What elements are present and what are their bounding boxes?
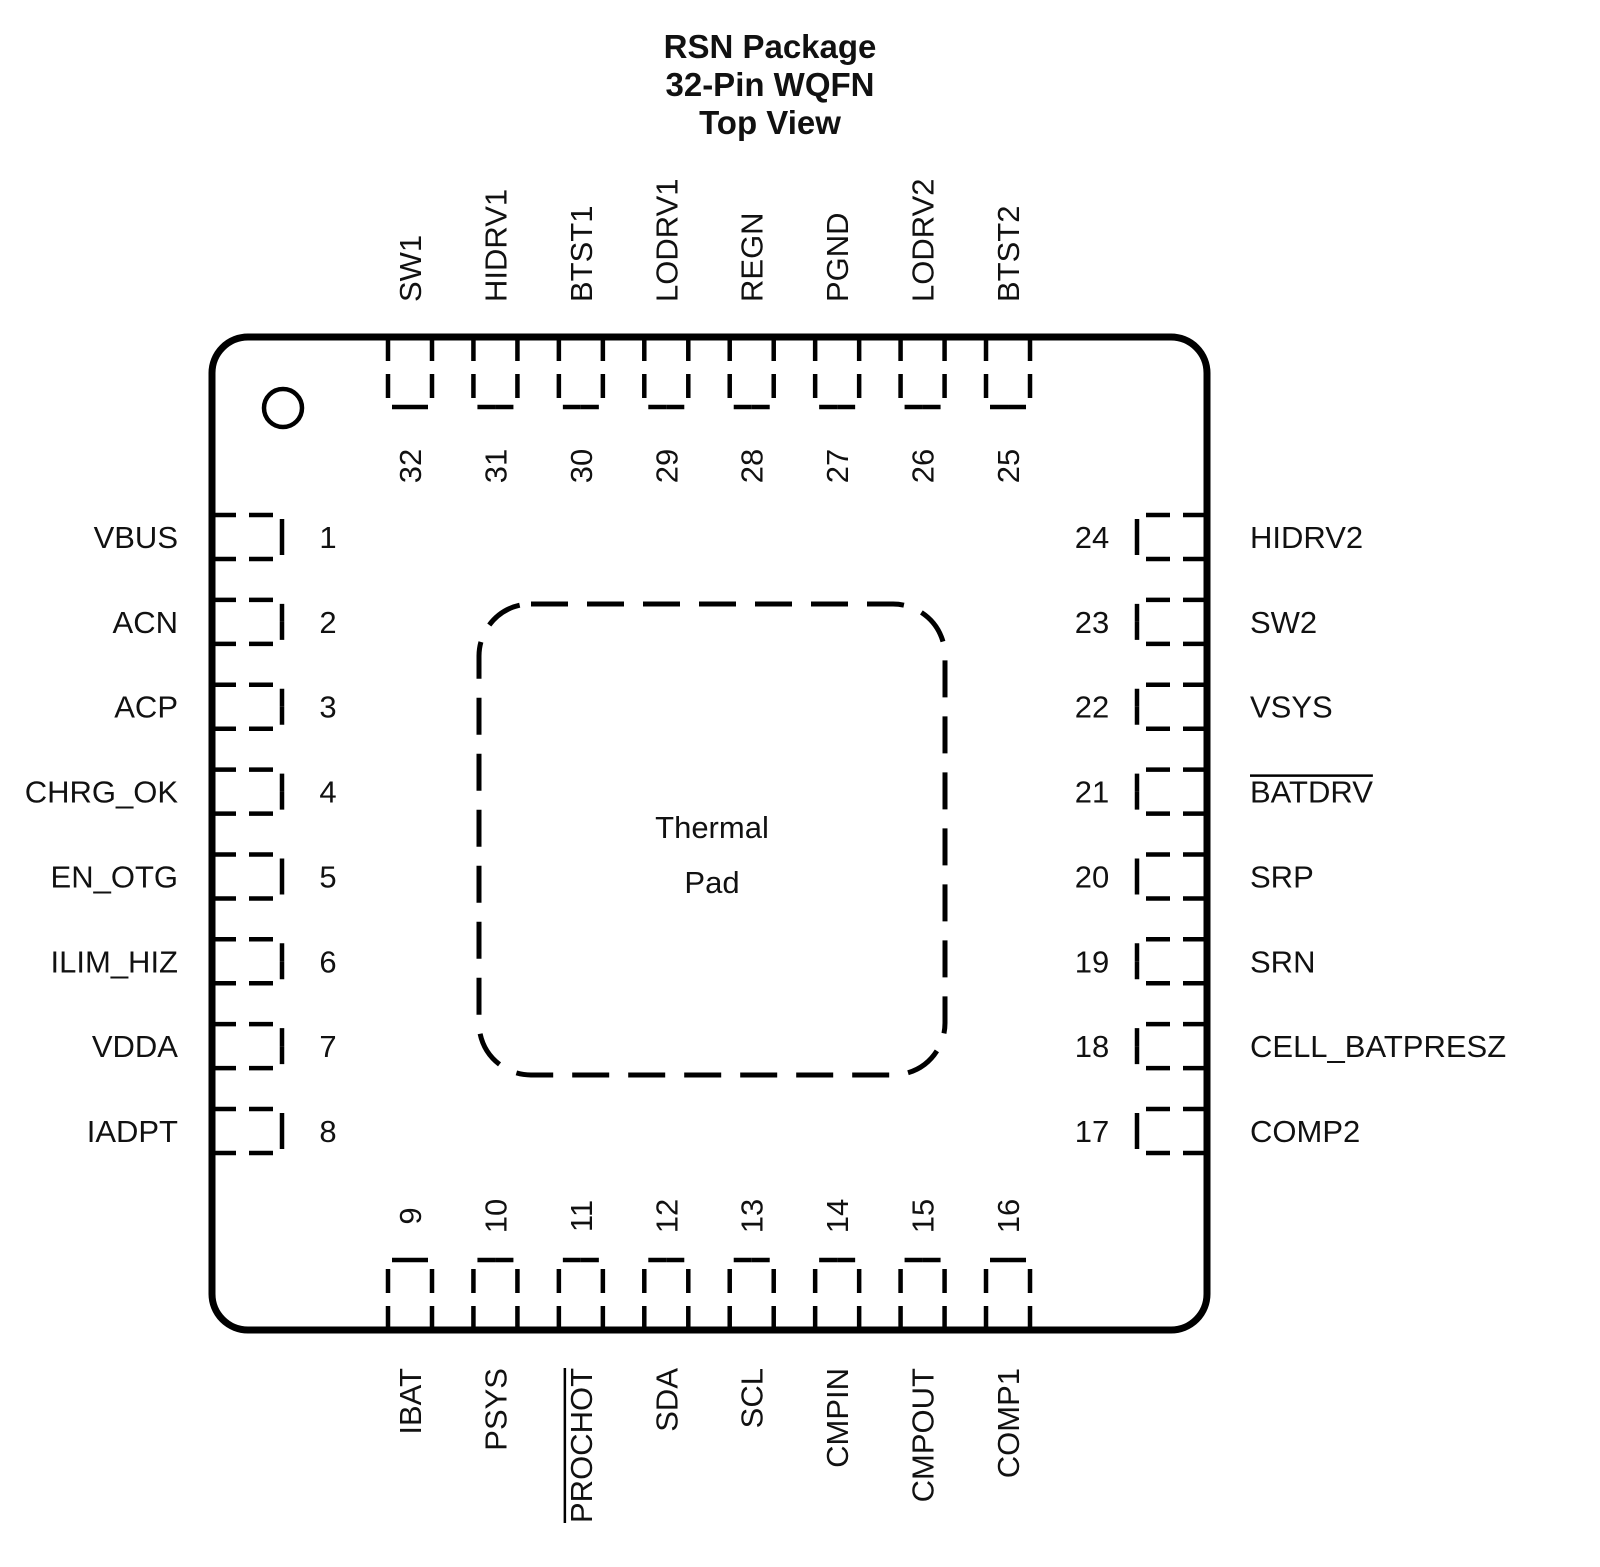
pin-2: 2ACN xyxy=(113,600,337,644)
thermal-pad-label: Pad xyxy=(684,865,739,900)
pin-label: PGND xyxy=(820,212,855,302)
pin-number: 21 xyxy=(1075,775,1109,810)
pin-label: SRP xyxy=(1250,859,1314,894)
pin-pad xyxy=(666,1260,688,1330)
pin-17: 17COMP2 xyxy=(1075,1109,1360,1153)
pin-number: 17 xyxy=(1075,1114,1109,1149)
pin-20: 20SRP xyxy=(1075,854,1314,898)
pin-pad xyxy=(212,792,282,814)
pin-label: ACN xyxy=(113,605,178,640)
pin-label: EN_OTG xyxy=(51,859,178,894)
pin-pad xyxy=(212,939,282,961)
pin-pad xyxy=(752,1260,774,1330)
pin-number: 18 xyxy=(1075,1029,1109,1064)
pin-number: 28 xyxy=(735,449,770,483)
pin-21: 21BATDRV xyxy=(1075,770,1373,814)
pin-pad xyxy=(212,622,282,644)
pin-12: 12SDA xyxy=(644,1199,688,1432)
pin-pad xyxy=(1137,1024,1207,1046)
pin-pad xyxy=(410,1260,432,1330)
pin-pad xyxy=(1137,537,1207,559)
pin-23: 23SW2 xyxy=(1075,600,1317,644)
pin-13: 13SCL xyxy=(730,1199,774,1429)
pin-label: PSYS xyxy=(478,1368,513,1451)
pinout-figure: RSN Package 32-Pin WQFN Top View Thermal… xyxy=(0,0,1600,1567)
pin-pad xyxy=(212,1024,282,1046)
pin-pad xyxy=(923,1260,945,1330)
pin-pad xyxy=(986,337,1008,407)
pin-pad xyxy=(730,1260,752,1330)
pin-10: 10PSYS xyxy=(473,1199,517,1451)
pin-label: ILIM_HIZ xyxy=(51,944,178,979)
pin-pad xyxy=(1008,337,1030,407)
pin-label: BTST1 xyxy=(564,206,599,302)
pin1-indicator-circle xyxy=(264,389,302,427)
pin-pad xyxy=(212,707,282,729)
pin-pad xyxy=(644,337,666,407)
pin-label: BATDRV xyxy=(1250,775,1373,810)
pin-pad xyxy=(388,1260,410,1330)
pin-pad xyxy=(1137,770,1207,792)
pin-number: 10 xyxy=(478,1199,513,1233)
pin-pad xyxy=(1137,876,1207,898)
pin-pad xyxy=(837,337,859,407)
pin-pad xyxy=(1137,600,1207,622)
pin-number: 4 xyxy=(319,775,336,810)
pin-label: IBAT xyxy=(393,1368,428,1435)
pin-label: LODRV2 xyxy=(906,179,941,303)
pin-pad xyxy=(212,770,282,792)
pin-label: LODRV1 xyxy=(649,179,684,303)
pin-pad xyxy=(212,600,282,622)
pin-pad xyxy=(730,337,752,407)
pin-pad xyxy=(1137,515,1207,537)
pin-pad xyxy=(473,1260,495,1330)
pin-number: 5 xyxy=(319,859,336,894)
pin-number: 20 xyxy=(1075,859,1109,894)
pin-pad xyxy=(581,337,603,407)
pin-pad xyxy=(495,337,517,407)
pin-number: 7 xyxy=(319,1029,336,1064)
pin-number: 31 xyxy=(478,449,513,483)
pin-9: 9IBAT xyxy=(388,1207,432,1434)
pin-number: 19 xyxy=(1075,944,1109,979)
pin-pad xyxy=(212,537,282,559)
pin-label: VDDA xyxy=(92,1029,178,1064)
pin-number: 15 xyxy=(906,1199,941,1233)
pin-15: 15CMPOUT xyxy=(901,1199,945,1503)
pin-pad xyxy=(212,961,282,983)
pin-label: REGN xyxy=(735,212,770,302)
pin-pad xyxy=(212,876,282,898)
pin-number: 25 xyxy=(991,449,1026,483)
pin-label: SRN xyxy=(1250,944,1315,979)
pin-28: 28REGN xyxy=(730,212,774,483)
pin-pad xyxy=(815,1260,837,1330)
pin-3: 3ACP xyxy=(114,685,336,729)
pin-number: 3 xyxy=(319,690,336,725)
pin-label: VSYS xyxy=(1250,690,1333,725)
pin-number: 23 xyxy=(1075,605,1109,640)
pin-number: 22 xyxy=(1075,690,1109,725)
pin-pad xyxy=(473,337,495,407)
pin-32: 32SW1 xyxy=(388,235,432,483)
pin-label: BTST2 xyxy=(991,206,1026,302)
pin-pad xyxy=(1137,685,1207,707)
pin-label: COMP2 xyxy=(1250,1114,1360,1149)
pin-pad xyxy=(212,854,282,876)
pin-pad xyxy=(212,515,282,537)
pin-label: ACP xyxy=(114,690,178,725)
pin-pad xyxy=(212,1131,282,1153)
thermal-pad-label: Thermal xyxy=(655,810,769,845)
pin-29: 29LODRV1 xyxy=(644,179,688,484)
pin-label: SDA xyxy=(649,1368,684,1432)
pin-number: 27 xyxy=(820,449,855,483)
pin-number: 32 xyxy=(393,449,428,483)
pin-pad xyxy=(1137,1131,1207,1153)
pin-pad xyxy=(901,337,923,407)
pin-pad xyxy=(1137,792,1207,814)
pin-pad xyxy=(410,337,432,407)
pin-number: 13 xyxy=(735,1199,770,1233)
pin-pad xyxy=(1008,1260,1030,1330)
pin-label: CHRG_OK xyxy=(25,775,179,810)
pin-27: 27PGND xyxy=(815,212,859,483)
pin-19: 19SRN xyxy=(1075,939,1316,983)
pin-number: 2 xyxy=(319,605,336,640)
pinout-svg: ThermalPad32SW131HIDRV130BTST129LODRV128… xyxy=(0,0,1600,1567)
pin-label: VBUS xyxy=(94,520,178,555)
pin-number: 12 xyxy=(649,1199,684,1233)
pin-11: 11PROCHOT xyxy=(559,1200,603,1523)
pin-label: CMPOUT xyxy=(906,1368,941,1502)
pin-number: 24 xyxy=(1075,520,1109,555)
pin-number: 30 xyxy=(564,449,599,483)
pin-pad xyxy=(1137,622,1207,644)
pin-pad xyxy=(559,337,581,407)
pin-6: 6ILIM_HIZ xyxy=(51,939,337,983)
pin-pad xyxy=(388,337,410,407)
pin-label: SW1 xyxy=(393,235,428,302)
pin-pad xyxy=(901,1260,923,1330)
pin-number: 14 xyxy=(820,1199,855,1233)
pin-number: 26 xyxy=(906,449,941,483)
pin-number: 9 xyxy=(393,1207,428,1224)
pin-label: IADPT xyxy=(87,1114,178,1149)
pin-label: HIDRV2 xyxy=(1250,520,1363,555)
pin-24: 24HIDRV2 xyxy=(1075,515,1363,559)
pin-number: 6 xyxy=(319,944,336,979)
pin-pad xyxy=(923,337,945,407)
pin-label: CMPIN xyxy=(820,1368,855,1468)
pin-26: 26LODRV2 xyxy=(901,179,945,484)
pin-25: 25BTST2 xyxy=(986,206,1030,484)
pin-pad xyxy=(212,1046,282,1068)
pin-number: 11 xyxy=(564,1200,599,1232)
pin-pad xyxy=(837,1260,859,1330)
pin-pad xyxy=(644,1260,666,1330)
pin-pad xyxy=(815,337,837,407)
pin-label: CELL_BATPRESZ xyxy=(1250,1029,1506,1064)
pin-number: 8 xyxy=(319,1114,336,1149)
pin-label: COMP1 xyxy=(991,1368,1026,1478)
pin-16: 16COMP1 xyxy=(986,1199,1030,1478)
pin-pad xyxy=(581,1260,603,1330)
pin-label: SW2 xyxy=(1250,605,1317,640)
pin-pad xyxy=(1137,961,1207,983)
pin-pad xyxy=(1137,854,1207,876)
pin-pad xyxy=(495,1260,517,1330)
pin-label: PROCHOT xyxy=(564,1368,599,1523)
pin-pad xyxy=(1137,707,1207,729)
pin-number: 1 xyxy=(319,520,336,555)
pin-5: 5EN_OTG xyxy=(51,854,337,898)
pin-pad xyxy=(1137,1046,1207,1068)
pin-pad xyxy=(666,337,688,407)
pin-pad xyxy=(559,1260,581,1330)
pin-pad xyxy=(212,685,282,707)
pin-4: 4CHRG_OK xyxy=(25,770,337,814)
pin-pad xyxy=(1137,1109,1207,1131)
pin-18: 18CELL_BATPRESZ xyxy=(1075,1024,1506,1068)
pin-label: SCL xyxy=(735,1368,770,1428)
pin-pad xyxy=(752,337,774,407)
pin-pad xyxy=(986,1260,1008,1330)
pin-pad xyxy=(212,1109,282,1131)
pin-label: HIDRV1 xyxy=(478,189,513,302)
pin-number: 16 xyxy=(991,1199,1026,1233)
pin-number: 29 xyxy=(649,449,684,483)
pin-30: 30BTST1 xyxy=(559,206,603,484)
pin-pad xyxy=(1137,939,1207,961)
